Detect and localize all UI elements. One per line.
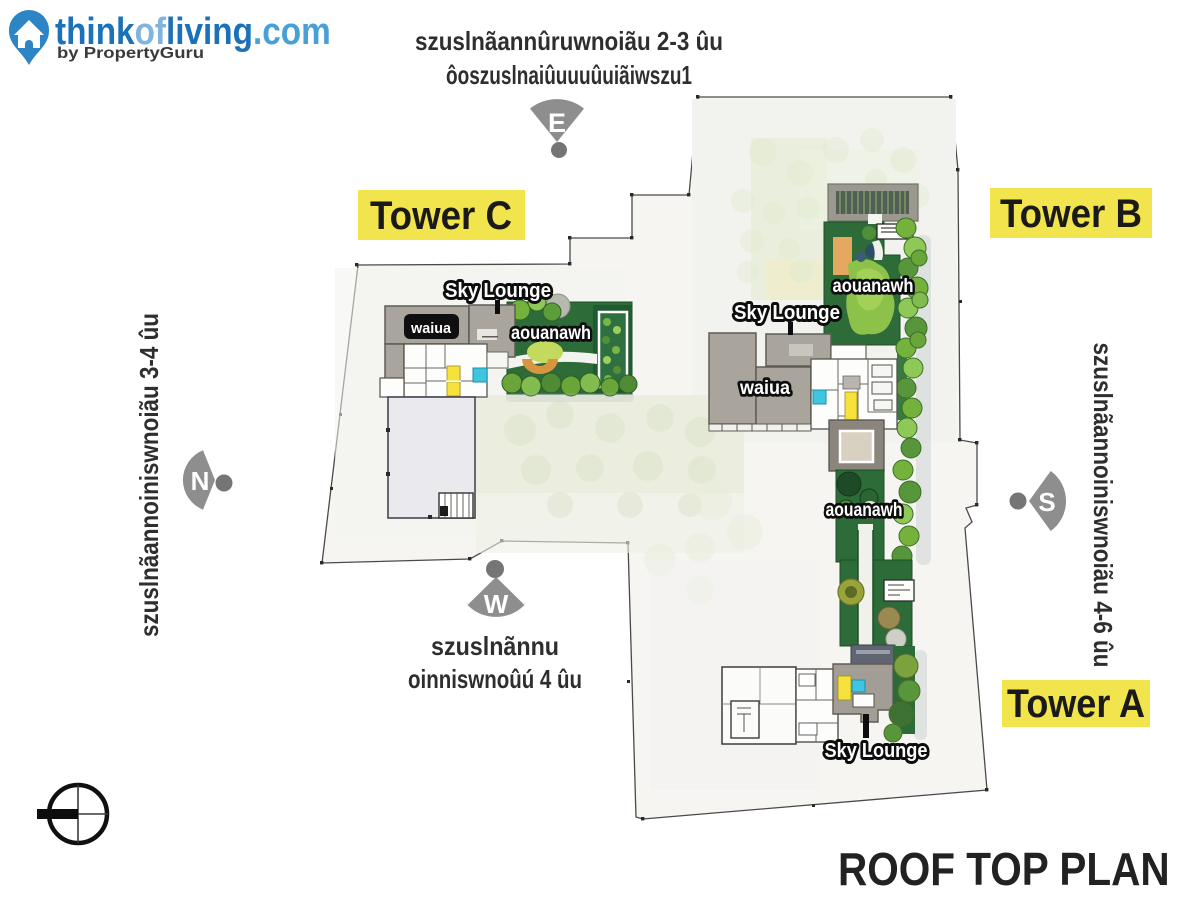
svg-text:aouanawh: aouanawh xyxy=(511,323,591,344)
svg-text:szuslnãannoiniswnoiãu 3-4 ûu: szuslnãannoiniswnoiãu 3-4 ûu xyxy=(134,313,164,637)
svg-text:Sky Lounge: Sky Lounge xyxy=(825,740,928,762)
svg-text:oinniswnoûú 4 ûu: oinniswnoûú 4 ûu xyxy=(408,664,582,694)
svg-text:szuslnãannoiniswnoiãu 4-6 ûu: szuslnãannoiniswnoiãu 4-6 ûu xyxy=(1088,343,1118,668)
svg-text:S: S xyxy=(1038,487,1055,517)
svg-text:ôoszuslnaiûuuuûuiãiwszu1: ôoszuslnaiûuuuûuiãiwszu1 xyxy=(446,60,692,90)
svg-text:W: W xyxy=(484,589,509,619)
svg-text:N: N xyxy=(191,466,210,496)
svg-text:Tower B: Tower B xyxy=(1000,192,1142,236)
svg-text:Sky Lounge: Sky Lounge xyxy=(734,302,840,324)
svg-text:szuslnãnnu: szuslnãnnu xyxy=(431,631,559,661)
svg-text:ROOF TOP PLAN: ROOF TOP PLAN xyxy=(838,845,1170,896)
svg-text:E: E xyxy=(548,108,566,138)
svg-text:Tower A: Tower A xyxy=(1007,682,1145,726)
svg-text:szuslnãannûruwnoiãu 2-3 ûu: szuslnãannûruwnoiãu 2-3 ûu xyxy=(415,26,723,56)
svg-text:by PropertyGuru: by PropertyGuru xyxy=(57,45,204,62)
svg-text:Sky Lounge: Sky Lounge xyxy=(445,280,551,302)
svg-text:waiua: waiua xyxy=(410,320,452,337)
svg-text:waiua: waiua xyxy=(739,378,790,399)
svg-text:Tower C: Tower C xyxy=(370,194,512,238)
svg-text:aouanawh: aouanawh xyxy=(833,276,914,297)
svg-text:aouanawh: aouanawh xyxy=(826,500,903,521)
